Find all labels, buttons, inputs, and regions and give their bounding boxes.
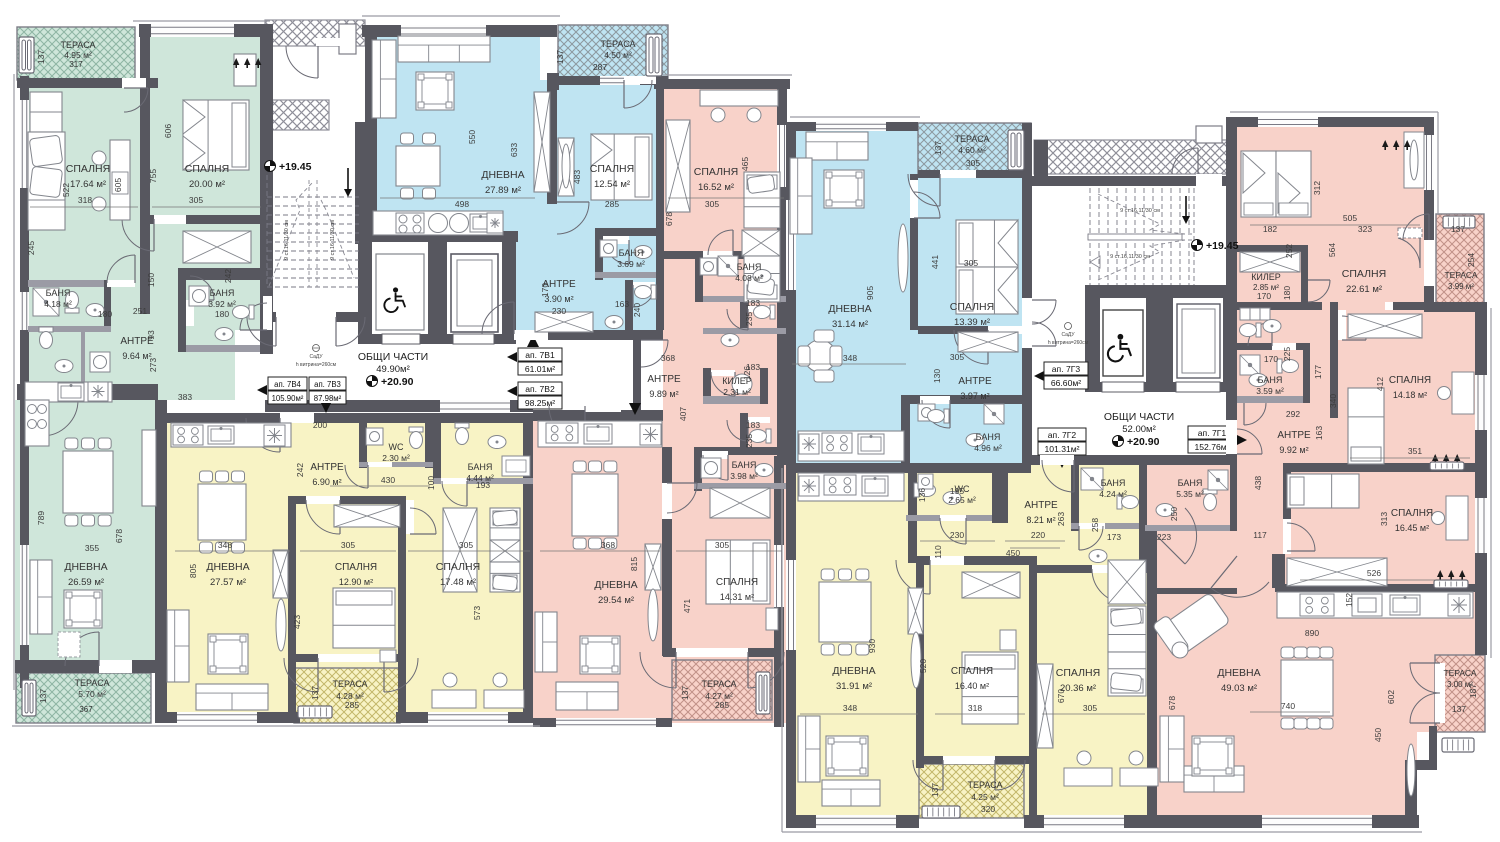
svg-text:АНТРЕ: АНТРЕ: [310, 462, 344, 473]
svg-text:ТЕРАСА: ТЕРАСА: [1444, 270, 1477, 280]
svg-text:285: 285: [605, 199, 619, 209]
svg-text:+19.45: +19.45: [279, 161, 312, 173]
svg-text:235: 235: [744, 434, 754, 448]
svg-text:450: 450: [1006, 548, 1020, 558]
svg-text:412: 412: [1375, 377, 1385, 391]
svg-text:340: 340: [1328, 394, 1338, 408]
svg-text:755: 755: [148, 169, 158, 183]
svg-text:12.90 м²: 12.90 м²: [339, 577, 373, 587]
svg-text:152.76м²: 152.76м²: [1194, 442, 1229, 452]
svg-text:ТЕРАСА: ТЕРАСА: [332, 679, 367, 689]
svg-text:182: 182: [1263, 224, 1277, 234]
svg-text:230: 230: [552, 306, 566, 316]
svg-text:183: 183: [746, 298, 760, 308]
svg-text:87.98м²: 87.98м²: [314, 394, 342, 403]
svg-text:66.60м²: 66.60м²: [1051, 378, 1081, 388]
svg-text:313: 313: [1379, 512, 1389, 526]
svg-text:ТЕРАСА: ТЕРАСА: [60, 40, 95, 50]
svg-text:187: 187: [1468, 684, 1478, 698]
svg-text:220: 220: [1031, 530, 1045, 540]
svg-text:110: 110: [933, 545, 943, 559]
svg-text:348: 348: [843, 703, 857, 713]
svg-text:789: 789: [36, 511, 46, 525]
svg-text:312: 312: [1312, 181, 1322, 195]
svg-text:9.89 м²: 9.89 м²: [649, 389, 678, 399]
svg-text:ТЕРАСА: ТЕРАСА: [954, 134, 989, 144]
svg-text:526: 526: [1367, 568, 1381, 578]
svg-text:6.90 м²: 6.90 м²: [312, 477, 341, 487]
svg-text:СаДУ: СаДУ: [1061, 332, 1075, 338]
svg-text:633: 633: [509, 143, 519, 157]
svg-text:АНТРЕ: АНТРЕ: [1277, 430, 1311, 441]
svg-text:20.00 м²: 20.00 м²: [189, 179, 225, 190]
svg-text:3.69 м²: 3.69 м²: [617, 259, 645, 269]
svg-text:471: 471: [682, 599, 692, 613]
svg-text:348: 348: [843, 353, 857, 363]
svg-text:4.08 м²: 4.08 м²: [735, 273, 763, 283]
svg-text:137: 137: [38, 689, 48, 703]
svg-text:СаДУ: СаДУ: [309, 354, 323, 360]
svg-text:678: 678: [664, 212, 674, 226]
svg-text:740: 740: [1281, 701, 1295, 711]
svg-text:317: 317: [69, 60, 83, 69]
svg-text:4.50 м²: 4.50 м²: [604, 50, 632, 60]
svg-text:93: 93: [146, 330, 156, 340]
svg-text:4.18 м²: 4.18 м²: [44, 299, 72, 309]
svg-text:251: 251: [133, 306, 147, 316]
svg-text:183: 183: [746, 420, 760, 430]
svg-text:305: 305: [950, 352, 964, 362]
svg-text:150: 150: [146, 273, 156, 287]
svg-text:305: 305: [715, 540, 729, 550]
svg-text:4.60 м²: 4.60 м²: [958, 145, 986, 155]
svg-text:101.31м²: 101.31м²: [1044, 444, 1079, 454]
svg-text:605: 605: [113, 178, 123, 192]
svg-text:ТЕРАСА: ТЕРАСА: [600, 39, 635, 49]
svg-text:230: 230: [950, 530, 964, 540]
svg-text:170: 170: [1257, 291, 1271, 301]
svg-text:61.01м²: 61.01м²: [525, 364, 555, 374]
svg-text:СПАЛНЯ: СПАЛНЯ: [716, 577, 758, 588]
svg-text:СПАЛНЯ: СПАЛНЯ: [694, 166, 738, 178]
svg-text:h витрина=260см: h витрина=260см: [296, 362, 337, 368]
svg-text:БАНЯ: БАНЯ: [976, 432, 1001, 442]
svg-text:240: 240: [632, 303, 642, 317]
svg-text:5.70 м²: 5.70 м²: [78, 689, 106, 699]
svg-text:170: 170: [1264, 354, 1278, 364]
svg-text:367: 367: [79, 705, 93, 714]
svg-text:250: 250: [1169, 507, 1179, 521]
svg-text:258: 258: [1090, 518, 1100, 532]
svg-text:2.31 м²: 2.31 м²: [723, 387, 751, 397]
svg-text:СПАЛНЯ: СПАЛНЯ: [1391, 508, 1433, 519]
svg-text:564: 564: [1327, 243, 1337, 257]
svg-text:130: 130: [932, 369, 942, 383]
svg-text:173: 173: [1107, 532, 1121, 542]
svg-text:200: 200: [313, 420, 327, 430]
svg-text:9 ст.16,11/30 см: 9 ст.16,11/30 см: [1120, 208, 1160, 214]
svg-text:252: 252: [1284, 244, 1294, 258]
svg-text:505: 505: [1343, 213, 1357, 223]
svg-text:355: 355: [85, 543, 99, 553]
svg-text:52.00м²: 52.00м²: [1122, 424, 1155, 435]
svg-text:305: 305: [964, 258, 978, 268]
svg-text:137: 137: [933, 141, 943, 155]
svg-text:180: 180: [215, 309, 229, 319]
svg-text:h витрина=260см: h витрина=260см: [1048, 340, 1089, 346]
svg-text:БАНЯ: БАНЯ: [1178, 478, 1203, 488]
svg-text:ап. 7Г1: ап. 7Г1: [1198, 428, 1227, 438]
svg-text:ДНЕВНА: ДНЕВНА: [828, 303, 871, 315]
svg-text:14.31 м²: 14.31 м²: [720, 592, 754, 602]
svg-text:ДНЕВНА: ДНЕВНА: [481, 169, 524, 181]
svg-text:СПАЛНЯ: СПАЛНЯ: [951, 666, 993, 677]
svg-text:195: 195: [950, 486, 964, 496]
svg-text:СПАЛНЯ: СПАЛНЯ: [66, 163, 110, 175]
svg-text:522: 522: [61, 183, 71, 197]
svg-text:441: 441: [930, 255, 940, 269]
svg-text:606: 606: [163, 124, 173, 138]
svg-text:223: 223: [1157, 532, 1171, 542]
svg-text:22.61 м²: 22.61 м²: [1346, 284, 1382, 295]
svg-text:285: 285: [715, 700, 729, 710]
svg-text:17.64 м²: 17.64 м²: [70, 179, 106, 190]
svg-text:520: 520: [918, 659, 928, 673]
svg-text:137: 137: [680, 686, 690, 700]
svg-text:670: 670: [1056, 689, 1066, 703]
svg-text:БАНЯ: БАНЯ: [619, 248, 644, 258]
svg-text:29.54 м²: 29.54 м²: [598, 595, 634, 606]
svg-text:137: 137: [1451, 224, 1465, 234]
svg-text:678: 678: [1167, 696, 1177, 710]
svg-text:ап. 7В1: ап. 7В1: [525, 350, 555, 360]
svg-text:ДНЕВНА: ДНЕВНА: [832, 665, 875, 677]
svg-text:БАНЯ: БАНЯ: [210, 288, 235, 298]
svg-text:890: 890: [1305, 628, 1319, 638]
svg-text:905: 905: [865, 286, 875, 300]
svg-text:170: 170: [540, 283, 550, 297]
svg-text:273: 273: [148, 358, 158, 372]
svg-text:242: 242: [295, 463, 305, 477]
svg-text:ДНЕВНА: ДНЕВНА: [206, 561, 249, 573]
svg-text:305: 305: [341, 540, 355, 550]
svg-text:49.03 м²: 49.03 м²: [1221, 683, 1257, 694]
svg-text:ап. 7Г3: ап. 7Г3: [1052, 364, 1081, 374]
svg-text:БАНЯ: БАНЯ: [468, 462, 493, 472]
svg-text:16.40 м²: 16.40 м²: [955, 681, 989, 691]
svg-text:430: 430: [381, 475, 395, 485]
svg-text:СПАЛНЯ: СПАЛНЯ: [185, 163, 229, 175]
svg-text:383: 383: [178, 392, 192, 402]
svg-text:26.59 м²: 26.59 м²: [68, 577, 104, 588]
svg-text:152: 152: [1344, 593, 1354, 607]
svg-text:БАНЯ: БАНЯ: [737, 262, 762, 272]
svg-text:305: 305: [189, 195, 203, 205]
svg-text:242: 242: [223, 269, 233, 283]
svg-text:ап. 7В2: ап. 7В2: [525, 384, 555, 394]
svg-text:137: 137: [930, 783, 940, 797]
svg-text:БАНЯ: БАНЯ: [46, 288, 71, 298]
svg-text:ап. 7В4: ап. 7В4: [274, 380, 301, 389]
svg-text:137: 137: [36, 50, 46, 64]
svg-text:4.95 м²: 4.95 м²: [64, 50, 92, 60]
svg-text:235: 235: [744, 312, 754, 326]
svg-text:БАНЯ: БАНЯ: [732, 460, 757, 470]
svg-text:СПАЛНЯ: СПАЛНЯ: [335, 562, 377, 573]
svg-text:8.21 м²: 8.21 м²: [1026, 515, 1055, 525]
svg-text:2.30 м²: 2.30 м²: [382, 453, 410, 463]
svg-text:368: 368: [601, 540, 615, 550]
svg-text:465: 465: [740, 157, 750, 171]
svg-text:+20.90: +20.90: [381, 376, 414, 388]
svg-text:+20.90: +20.90: [1127, 436, 1160, 448]
svg-text:351: 351: [1408, 446, 1422, 456]
svg-text:СПАЛНЯ: СПАЛНЯ: [436, 561, 480, 573]
svg-text:49.90м²: 49.90м²: [376, 364, 409, 375]
svg-text:ДНЕВНА: ДНЕВНА: [594, 579, 637, 591]
svg-text:438: 438: [1253, 476, 1263, 490]
svg-text:483: 483: [572, 170, 582, 184]
svg-text:АНТРЕ: АНТРЕ: [958, 376, 992, 387]
svg-text:193: 193: [476, 480, 490, 490]
svg-text:2.65 м²: 2.65 м²: [948, 495, 976, 505]
svg-text:498: 498: [455, 199, 469, 209]
svg-text:126: 126: [742, 366, 752, 380]
svg-text:WC: WC: [389, 442, 404, 452]
svg-text:180: 180: [98, 309, 112, 319]
svg-text:3.97 м²: 3.97 м²: [960, 391, 989, 401]
svg-text:805: 805: [188, 564, 198, 578]
svg-text:5.35 м²: 5.35 м²: [1176, 489, 1204, 499]
svg-text:ТЕРАСА: ТЕРАСА: [701, 679, 736, 689]
svg-text:12.54 м²: 12.54 м²: [594, 179, 630, 190]
svg-text:163: 163: [615, 299, 629, 309]
svg-text:ДНЕВНА: ДНЕВНА: [64, 561, 107, 573]
svg-text:163: 163: [1314, 426, 1324, 440]
svg-text:136: 136: [917, 488, 927, 502]
svg-text:407: 407: [678, 407, 688, 421]
svg-text:4.25 м²: 4.25 м²: [971, 792, 999, 802]
svg-text:287: 287: [593, 62, 607, 72]
svg-text:9 ст.16,11/30 см: 9 ст.16,11/30 см: [1110, 254, 1150, 260]
svg-text:14.18 м²: 14.18 м²: [1393, 390, 1427, 400]
svg-text:3.92 м²: 3.92 м²: [208, 299, 236, 309]
svg-text:137: 137: [1452, 704, 1466, 714]
svg-text:318: 318: [968, 703, 982, 713]
svg-text:180: 180: [1282, 286, 1292, 300]
svg-text:323: 323: [1358, 224, 1372, 234]
svg-text:ап. 7В3: ап. 7В3: [314, 380, 341, 389]
svg-text:КИЛЕР: КИЛЕР: [1251, 272, 1281, 282]
svg-text:930: 930: [867, 639, 877, 653]
svg-text:177: 177: [1313, 365, 1323, 379]
svg-text:602: 602: [1386, 690, 1396, 704]
svg-text:573: 573: [472, 606, 482, 620]
svg-text:16.52 м²: 16.52 м²: [698, 182, 734, 193]
svg-text:ОБЩИ ЧАСТИ: ОБЩИ ЧАСТИ: [358, 351, 428, 363]
svg-text:+19.45: +19.45: [1206, 240, 1239, 252]
svg-text:254: 254: [1466, 253, 1476, 267]
svg-text:СПАЛНЯ: СПАЛНЯ: [950, 301, 994, 313]
svg-text:368: 368: [661, 353, 675, 363]
svg-text:815: 815: [629, 557, 639, 571]
svg-text:550: 550: [467, 130, 477, 144]
svg-text:АНТРЕ: АНТРЕ: [647, 374, 681, 385]
svg-text:3.99 м²: 3.99 м²: [1448, 282, 1474, 291]
svg-text:БАНЯ: БАНЯ: [1258, 375, 1283, 385]
svg-text:3.98 м²: 3.98 м²: [730, 471, 758, 481]
svg-text:98.25м²: 98.25м²: [525, 398, 555, 408]
svg-text:БАНЯ: БАНЯ: [1101, 478, 1126, 488]
svg-text:4.96 м²: 4.96 м²: [974, 443, 1002, 453]
svg-text:305: 305: [459, 540, 473, 550]
svg-text:9 ст.16,11/30 см: 9 ст.16,11/30 см: [284, 220, 290, 260]
svg-text:9 ст.16,11/30 см: 9 ст.16,11/30 см: [330, 220, 336, 260]
svg-text:31.14 м²: 31.14 м²: [832, 319, 868, 330]
svg-text:225: 225: [1282, 347, 1292, 361]
svg-text:ТЕРАСА: ТЕРАСА: [1443, 668, 1476, 678]
svg-text:АНТРЕ: АНТРЕ: [1024, 500, 1058, 511]
svg-text:292: 292: [1286, 409, 1300, 419]
svg-text:СПАЛНЯ: СПАЛНЯ: [1389, 375, 1431, 386]
svg-text:17.48 м²: 17.48 м²: [440, 577, 476, 588]
svg-text:305: 305: [705, 199, 719, 209]
svg-text:СПАЛНЯ: СПАЛНЯ: [1342, 268, 1386, 280]
svg-text:ап. 7Г2: ап. 7Г2: [1048, 430, 1077, 440]
svg-text:305: 305: [1083, 703, 1097, 713]
svg-text:263: 263: [1056, 512, 1066, 526]
svg-text:137: 137: [555, 50, 565, 64]
svg-text:137: 137: [310, 686, 320, 700]
svg-text:ОБЩИ ЧАСТИ: ОБЩИ ЧАСТИ: [1104, 411, 1174, 423]
svg-text:27.57 м²: 27.57 м²: [210, 577, 246, 588]
svg-text:13.39 м²: 13.39 м²: [954, 317, 990, 328]
svg-text:245: 245: [26, 241, 36, 255]
svg-text:105.90м²: 105.90м²: [272, 394, 304, 403]
svg-text:320: 320: [981, 804, 995, 814]
svg-text:3.59 м²: 3.59 м²: [1256, 386, 1284, 396]
svg-text:678: 678: [114, 529, 124, 543]
svg-text:4.24 м²: 4.24 м²: [1099, 489, 1127, 499]
svg-text:31.91 м²: 31.91 м²: [836, 681, 872, 692]
svg-text:100: 100: [426, 476, 436, 490]
svg-text:305: 305: [966, 158, 980, 168]
svg-text:117: 117: [1253, 530, 1267, 540]
svg-text:27.89 м²: 27.89 м²: [485, 185, 521, 196]
svg-text:9.92 м²: 9.92 м²: [1279, 445, 1308, 455]
svg-text:423: 423: [292, 615, 302, 629]
svg-text:16.45 м²: 16.45 м²: [1395, 523, 1429, 533]
svg-text:ДНЕВНА: ДНЕВНА: [1217, 667, 1260, 679]
svg-text:СПАЛНЯ: СПАЛНЯ: [1056, 667, 1100, 679]
svg-text:СПАЛНЯ: СПАЛНЯ: [590, 163, 634, 175]
svg-text:ТЕРАСА: ТЕРАСА: [74, 678, 109, 688]
svg-text:ТЕРАСА: ТЕРАСА: [967, 780, 1002, 790]
svg-text:318: 318: [78, 195, 92, 205]
svg-text:450: 450: [1373, 728, 1383, 742]
svg-text:285: 285: [345, 700, 359, 710]
svg-text:348: 348: [218, 540, 232, 550]
